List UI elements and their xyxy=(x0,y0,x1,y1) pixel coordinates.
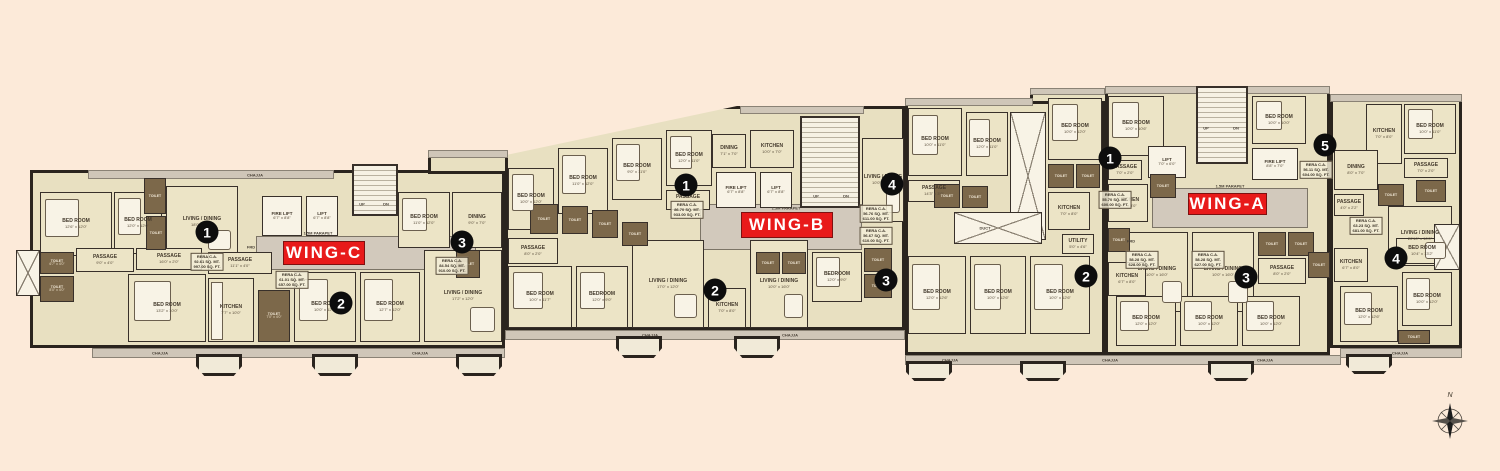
room-label: PASSAGE8'0" x 2'0" xyxy=(1270,266,1294,276)
room-label: BED ROOM10'0" x 11'0" xyxy=(921,137,949,147)
room-label: LIFT6'7" x 8'8" xyxy=(313,211,331,221)
rera-area-label: RERA C.A.56.11 SQ. MT.604.00 SQ. FT. xyxy=(1300,161,1333,179)
bay-window xyxy=(906,361,952,381)
rera-area-label: RERA C.A.56.67 SQ. MT.610.00 SQ. FT. xyxy=(860,227,893,245)
room: PASSAGE7'0" x 2'0" xyxy=(1404,158,1448,178)
rera-area-label: RERA C.A.58.28 SQ. MT.628.00 SQ. FT. xyxy=(1126,251,1159,269)
table-furniture-icon xyxy=(784,294,803,318)
room-label: TOILET7'0" x 4'0" xyxy=(266,312,281,320)
room-label: BED ROOM10'0" x 12'0" xyxy=(1413,294,1441,304)
room: BED ROOM12'0" x 12'0" xyxy=(1116,296,1176,346)
room-label: TOILET xyxy=(1157,184,1169,188)
bed-furniture-icon xyxy=(364,279,393,320)
chajja-band xyxy=(1030,88,1105,95)
room-label: KITCHEN7'7" x 10'0" xyxy=(220,305,242,315)
room-label: LIFT6'7" x 8'8" xyxy=(767,185,785,195)
toilet-room: TOILET xyxy=(1048,164,1074,188)
north-label: N xyxy=(1428,392,1472,399)
room-label: LIVING / DINING17'0" x 12'0" xyxy=(649,279,687,289)
annotation-label: 1.5M PARAPET xyxy=(304,231,333,236)
rera-area-label: RERA C.A.86.70 SQ. MT.933.00 SQ. FT. xyxy=(671,201,704,219)
room: BEDROOM12'0" x 9'0" xyxy=(576,266,628,328)
room-label: PASSAGE7'0" x 2'0" xyxy=(1414,163,1438,173)
room-label: BEDROOM12'0" x 9'0" xyxy=(589,292,615,302)
room: PASSAGE4'0" x 2'2" xyxy=(1334,194,1364,216)
toilet-room: TOILET xyxy=(622,222,648,246)
room-label: BED ROOM12'0" x 11'0" xyxy=(675,153,703,163)
room: BED ROOM10'0" x 12'0" xyxy=(1048,98,1102,160)
room-label: BED ROOM10'0" x 10'6" xyxy=(1122,121,1150,131)
room-label: BED ROOM10'4" x 13'2" xyxy=(1408,246,1436,256)
annotation-label: CHAJJA xyxy=(1392,351,1408,356)
room-label: TOILET xyxy=(762,261,774,265)
room-label: BED ROOM10'0" x 11'0" xyxy=(1416,124,1444,134)
room-label: BEDROOM12'0" x 9'0" xyxy=(824,272,850,282)
rera-area-label: RERA C.A.61.01 SQ. MT.657.00 SQ. FT. xyxy=(276,271,309,289)
room-label: BED ROOM10'0" x 12'0" xyxy=(1061,124,1089,134)
room-label: BED ROOM12'7" x 12'0" xyxy=(376,302,404,312)
duct-xbox xyxy=(954,212,1042,244)
room-label: TOILET xyxy=(149,194,161,198)
room: BED ROOM12'0" x 12'6" xyxy=(908,256,966,334)
annotation-label: CHAJJA xyxy=(1257,358,1273,363)
annotation-label: UP xyxy=(813,194,819,199)
annotation-label: UP xyxy=(1203,126,1209,131)
room: BED ROOM9'0" x 11'0" xyxy=(612,138,662,200)
room-label: BED ROOM12'0" x 12'6" xyxy=(1355,309,1383,319)
floor-plan: N BED ROOM12'6" x 12'0"BED ROOM12'0" x 1… xyxy=(0,0,1500,471)
lift-room: LIFT6'7" x 8'8" xyxy=(760,172,792,208)
lift-room: FIRE LIFT6'7" x 8'8" xyxy=(262,196,302,236)
stair-room xyxy=(352,164,398,216)
bay-window xyxy=(1020,361,1066,381)
annotation-label: DN xyxy=(383,202,389,207)
room-label: KITCHEN7'0" x 8'0" xyxy=(1058,206,1080,216)
room: BED ROOM10'0" x 11'0" xyxy=(1404,104,1456,154)
room-label: FIRE LIFT8'8" x 7'0" xyxy=(1265,159,1286,169)
toilet-room: TOILET xyxy=(144,178,166,214)
room: DINING8'0" x 7'0" xyxy=(1334,150,1378,190)
room-label: BED ROOM10'0" x 10'0" xyxy=(1265,115,1293,125)
room: KITCHEN7'0" x 8'0" xyxy=(1048,192,1090,230)
room-label: TOILET xyxy=(1425,189,1437,193)
room-label: TOILET xyxy=(629,232,641,236)
room: BED ROOM10'0" x 11'0" xyxy=(908,108,962,176)
unit-number-badge: 2 xyxy=(330,292,353,315)
toilet-room: TOILET xyxy=(782,252,806,274)
room-label: BED ROOM10'0" x 12'0" xyxy=(517,194,545,204)
room: KITCHEN10'0" x 7'0" xyxy=(750,130,794,168)
toilet-room: TOILET xyxy=(1398,330,1430,344)
room-label: BED ROOM12'0" x 12'0" xyxy=(124,218,152,228)
chajja-band xyxy=(740,106,864,114)
toilet-room: TOILET xyxy=(530,204,558,234)
room: PASSAGE9'0" x 4'0" xyxy=(76,248,134,272)
room-label: TOILET xyxy=(872,258,884,262)
annotation-label: DN xyxy=(1233,126,1239,131)
chajja-band xyxy=(88,170,334,179)
room: BED ROOM12'7" x 12'0" xyxy=(360,272,420,342)
bay-window xyxy=(616,336,662,358)
room-label: DINING7'1" x 7'0" xyxy=(720,146,738,156)
room: LIVING / DINING17'0" x 12'0" xyxy=(632,240,704,328)
unit-number-badge: 5 xyxy=(1314,134,1337,157)
rera-area-label: RERA C.A.58.28 SQ. MT.627.00 SQ. FT. xyxy=(1192,251,1225,269)
room-label: BED ROOM10'0" x 12'6" xyxy=(984,290,1012,300)
room: BED ROOM10'0" x 12'0" xyxy=(1402,272,1452,326)
room-label: BED ROOM12'0" x 12'6" xyxy=(923,290,951,300)
room: BED ROOM12'0" x 11'0" xyxy=(966,112,1008,176)
room-label: TOILET xyxy=(599,222,611,226)
annotation-label: FRD xyxy=(1127,239,1135,244)
room-label: BED ROOM10'0" x 12'0" xyxy=(1257,316,1285,326)
room-label: LIVING / DINING20'10" x 10'0" xyxy=(1401,231,1439,241)
room: BEDROOM12'0" x 9'0" xyxy=(812,252,862,302)
unit-number-badge: 4 xyxy=(1385,247,1408,270)
room-label: TOILET xyxy=(1408,335,1420,339)
room-label: TOILET xyxy=(1082,174,1094,178)
unit-number-badge: 1 xyxy=(675,174,698,197)
rera-area-label: RERA C.A.92.61 SQ. MT.997.00 SQ. FT. xyxy=(191,253,224,271)
compass-icon xyxy=(1428,399,1472,443)
unit-number-badge: 3 xyxy=(875,269,898,292)
room: DINING7'1" x 7'0" xyxy=(712,134,746,168)
unit-number-badge: 4 xyxy=(881,173,904,196)
chajja-band xyxy=(905,355,1341,365)
annotation-label: DUCT xyxy=(979,226,990,231)
room-label: BED ROOM13'2" x 10'0" xyxy=(153,303,181,313)
annotation-label: DN xyxy=(843,194,849,199)
annotation-label: FRD xyxy=(247,245,255,250)
room-label: TOILET8'0" x 4'0" xyxy=(49,285,64,293)
unit-number-badge: 2 xyxy=(1075,265,1098,288)
toilet-room: TOILET xyxy=(1150,174,1176,198)
room-label: PASSAGE16'0" x 2'0" xyxy=(157,254,181,264)
room-label: TOILET6'7" x 4'0" xyxy=(49,259,64,267)
room-label: TOILET xyxy=(1295,242,1307,246)
room-label: TOILET xyxy=(941,194,953,198)
annotation-label: CHAJJA xyxy=(782,333,798,338)
annotation-label: CHAJJA xyxy=(412,351,428,356)
annotation-label: CHAJJA xyxy=(247,173,263,178)
bay-window xyxy=(456,354,502,376)
bay-window xyxy=(1346,354,1392,374)
room: KITCHEN7'7" x 10'0" xyxy=(208,278,254,342)
stair-room xyxy=(800,116,860,208)
room-label: UTILITY5'0" x 4'6" xyxy=(1069,239,1088,249)
room-label: TOILET xyxy=(1055,174,1067,178)
toilet-room: TOILET8'0" x 4'0" xyxy=(40,276,74,302)
chajja-band xyxy=(505,330,905,340)
duct-xbox xyxy=(16,250,40,296)
toilet-room: TOILET xyxy=(1378,184,1404,206)
room-label: TOILET xyxy=(150,231,162,235)
room-label: BED ROOM10'0" x 11'7" xyxy=(526,292,554,302)
room: BED ROOM11'0" x 12'0" xyxy=(558,148,608,214)
toilet-room: TOILET xyxy=(756,252,780,274)
toilet-room: TOILET xyxy=(592,210,618,238)
room: UTILITY5'0" x 4'6" xyxy=(1062,234,1094,254)
toilet-room: TOILET6'7" x 4'0" xyxy=(40,252,74,274)
room-label: BED ROOM12'0" x 11'0" xyxy=(973,139,1001,149)
annotation-label: 1.5M PARAPET xyxy=(772,206,801,211)
room: KITCHEN6'7" x 8'0" xyxy=(1334,248,1368,282)
room-label: TOILET xyxy=(1113,238,1125,242)
table-furniture-icon xyxy=(1162,281,1182,303)
unit-number-badge: 3 xyxy=(451,231,474,254)
room-label: PASSAGE9'0" x 4'0" xyxy=(93,255,117,265)
room-label: BED ROOM12'0" x 12'0" xyxy=(1132,316,1160,326)
toilet-room: TOILET xyxy=(562,206,588,234)
unit-number-badge: 3 xyxy=(1235,266,1258,289)
room-label: DINING9'0" x 7'0" xyxy=(468,215,486,225)
annotation-label: CHAJJA xyxy=(942,358,958,363)
room: BED ROOM13'2" x 10'0" xyxy=(128,274,206,342)
room-label: DINING8'0" x 7'0" xyxy=(1347,165,1365,175)
room: BED ROOM10'0" x 12'6" xyxy=(970,256,1026,334)
toilet-room: TOILET xyxy=(962,186,988,208)
table-furniture-icon xyxy=(674,294,697,318)
bay-window xyxy=(734,336,780,358)
room: BED ROOM12'6" x 12'0" xyxy=(40,192,112,256)
room: BED ROOM10'0" x 12'0" xyxy=(1242,296,1300,346)
chajja-band xyxy=(905,98,1033,106)
room-label: TOILET xyxy=(569,218,581,222)
wing-badge: WING-A xyxy=(1188,193,1267,215)
room-label: BED ROOM11'0" x 12'0" xyxy=(410,215,438,225)
room: BED ROOM11'0" x 12'0" xyxy=(398,192,450,248)
room-label: KITCHEN7'0" x 8'0" xyxy=(716,303,738,313)
bed-furniture-icon xyxy=(1034,264,1063,310)
room: PASSAGE8'0" x 2'0" xyxy=(1258,258,1306,284)
room-label: BED ROOM9'0" x 11'0" xyxy=(623,164,651,174)
chajja-band xyxy=(1330,94,1462,102)
bed-furniture-icon xyxy=(974,264,1001,310)
toilet-room: TOILET xyxy=(1416,180,1446,202)
room-label: BED ROOM12'6" x 12'0" xyxy=(62,219,90,229)
rera-area-label: RERA C.A.63.23 SQ. MT.681.00 SQ. FT. xyxy=(1350,217,1383,235)
annotation-label: CHAJJA xyxy=(642,333,658,338)
room-label: TOILET xyxy=(538,217,550,221)
annotation-label: 1.5M PARAPET xyxy=(1216,184,1245,189)
room: BED ROOM12'0" x 12'6" xyxy=(1340,286,1398,342)
bed-furniture-icon xyxy=(912,264,940,310)
room: PASSAGE8'0" x 2'0" xyxy=(508,238,558,264)
room-label: LIVING / DINING17'2" x 12'0" xyxy=(444,291,482,301)
unit-number-badge: 1 xyxy=(1099,147,1122,170)
room-label: TOILET xyxy=(1385,193,1397,197)
room-label: BED ROOM10'0" x 12'0" xyxy=(1195,316,1223,326)
room-label: TOILET xyxy=(788,261,800,265)
room-label: LIFT7'0" x 6'0" xyxy=(1158,157,1176,167)
lift-room: FIRE LIFT8'8" x 7'0" xyxy=(1252,148,1298,180)
room-label: KITCHEN6'7" x 8'0" xyxy=(1116,274,1138,284)
room-label: TOILET xyxy=(969,195,981,199)
toilet-room: TOILET xyxy=(1258,232,1286,256)
room: BED ROOM10'0" x 11'7" xyxy=(508,266,572,328)
bay-window xyxy=(312,354,358,376)
chajja-band xyxy=(428,150,508,158)
bay-window xyxy=(196,354,242,376)
wing-badge: WING-B xyxy=(741,212,833,238)
annotation-label: CHAJJA xyxy=(152,351,168,356)
bay-window xyxy=(1208,361,1254,381)
room-label: FIRE LIFT6'7" x 8'8" xyxy=(272,211,293,221)
annotation-label: CHAJJA xyxy=(1102,358,1118,363)
rera-area-label: RERA C.A.55.70 SQ. MT.600.00 SQ. FT. xyxy=(1099,191,1132,209)
unit-number-badge: 1 xyxy=(196,221,219,244)
annotation-label: UP xyxy=(359,202,365,207)
room-label: PASSAGE4'0" x 2'2" xyxy=(1337,200,1361,210)
room-label: PASSAGE8'0" x 2'0" xyxy=(521,246,545,256)
rera-area-label: RERA C.A.56.76 SQ. MT.611.00 SQ. FT. xyxy=(860,205,893,223)
room-label: KITCHEN10'0" x 7'0" xyxy=(761,144,783,154)
toilet-room: TOILET7'0" x 4'0" xyxy=(258,290,290,342)
wing-badge: WING-C xyxy=(283,241,365,265)
room-label: BED ROOM10'0" x 12'6" xyxy=(1046,290,1074,300)
unit-number-badge: 2 xyxy=(704,279,727,302)
room-label: TOILET xyxy=(1266,242,1278,246)
room-label: BED ROOM11'0" x 12'0" xyxy=(569,176,597,186)
compass: N xyxy=(1428,392,1472,448)
room: BED ROOM10'0" x 12'0" xyxy=(1180,296,1238,346)
room-label: KITCHEN7'0" x 8'0" xyxy=(1373,129,1395,139)
table-furniture-icon xyxy=(470,307,495,332)
toilet-room: TOILET xyxy=(1076,164,1100,188)
room-label: TOILET xyxy=(1313,263,1325,267)
room-label: PASSAGE11'1" x 4'0" xyxy=(228,258,252,268)
room-label: FIRE LIFT6'7" x 8'8" xyxy=(726,185,747,195)
rera-area-label: RERA C.A.84.54 SQ. MT.910.00 SQ. FT. xyxy=(436,257,469,275)
room-label: KITCHEN6'7" x 8'0" xyxy=(1340,260,1362,270)
room: BED ROOM10'0" x 10'0" xyxy=(1252,96,1306,144)
room-label: LIVING / DINING10'0" x 16'0" xyxy=(760,279,798,289)
toilet-room: TOILET xyxy=(1308,252,1330,278)
lift-room: FIRE LIFT6'7" x 8'8" xyxy=(716,172,756,208)
